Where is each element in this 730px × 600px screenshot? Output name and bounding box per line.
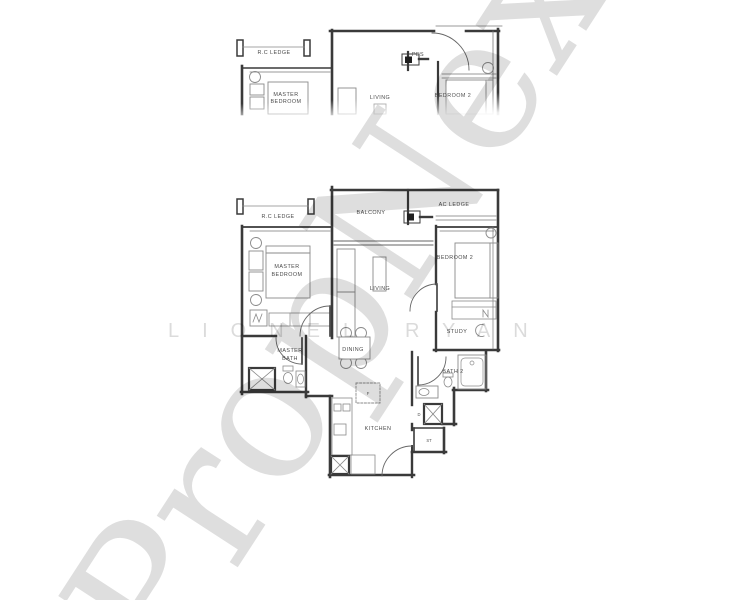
lower-room-labels: R.C LEDGE BALCONY AC LEDGE MASTER BEDROO… (261, 202, 473, 432)
master-bedroom-furniture (249, 238, 330, 327)
store-mark: ST (426, 438, 432, 443)
floor-plan-page: R.C LEDGE PES MASTER BEDROOM LIVING BEDR… (0, 0, 730, 600)
duct-shaft: D (417, 404, 442, 424)
fridge: F (356, 383, 380, 403)
floor-plan-drawing: R.C LEDGE PES MASTER BEDROOM LIVING BEDR… (0, 0, 730, 600)
dining-label: DINING (342, 347, 364, 353)
study-chair (476, 325, 484, 337)
kitchen-fixtures (331, 398, 375, 474)
upper-pes-label: PES (412, 52, 424, 58)
master-bath-label-2: BATH (282, 356, 298, 362)
fridge-mark: F (367, 391, 370, 396)
bath2-label: BATH 2 (442, 369, 463, 375)
master-bedroom-label-2: BEDROOM (271, 272, 302, 278)
master-bath-fixtures (249, 338, 305, 390)
upper-master-bedroom-label-1: MASTER (273, 92, 298, 98)
upper-plan-fade-edge (196, 91, 544, 184)
living-label: LIVING (370, 286, 390, 292)
master-bath-label-1: MASTER (277, 348, 302, 354)
bedroom2-furniture (452, 228, 498, 319)
master-bedroom-door (300, 306, 330, 336)
kitchen-label: KITCHEN (365, 426, 392, 432)
bath2-fixtures (416, 355, 486, 398)
lower-rc-ledge-label: R.C LEDGE (261, 214, 294, 220)
lower-rc-ledge (237, 199, 314, 214)
entrance-door (382, 446, 412, 476)
duct-mark: D (417, 412, 420, 417)
bedroom2-door (410, 284, 437, 311)
lower-floor-plan: F (237, 187, 499, 477)
master-bedroom-label-1: MASTER (274, 264, 299, 270)
study-label: STUDY (447, 329, 468, 335)
upper-rc-ledge-label: R.C LEDGE (257, 50, 290, 56)
balcony-label: BALCONY (357, 210, 386, 216)
ac-ledge-label: AC LEDGE (439, 202, 470, 208)
bedroom2-label: BEDROOM 2 (437, 255, 473, 261)
living-furniture (337, 249, 386, 337)
